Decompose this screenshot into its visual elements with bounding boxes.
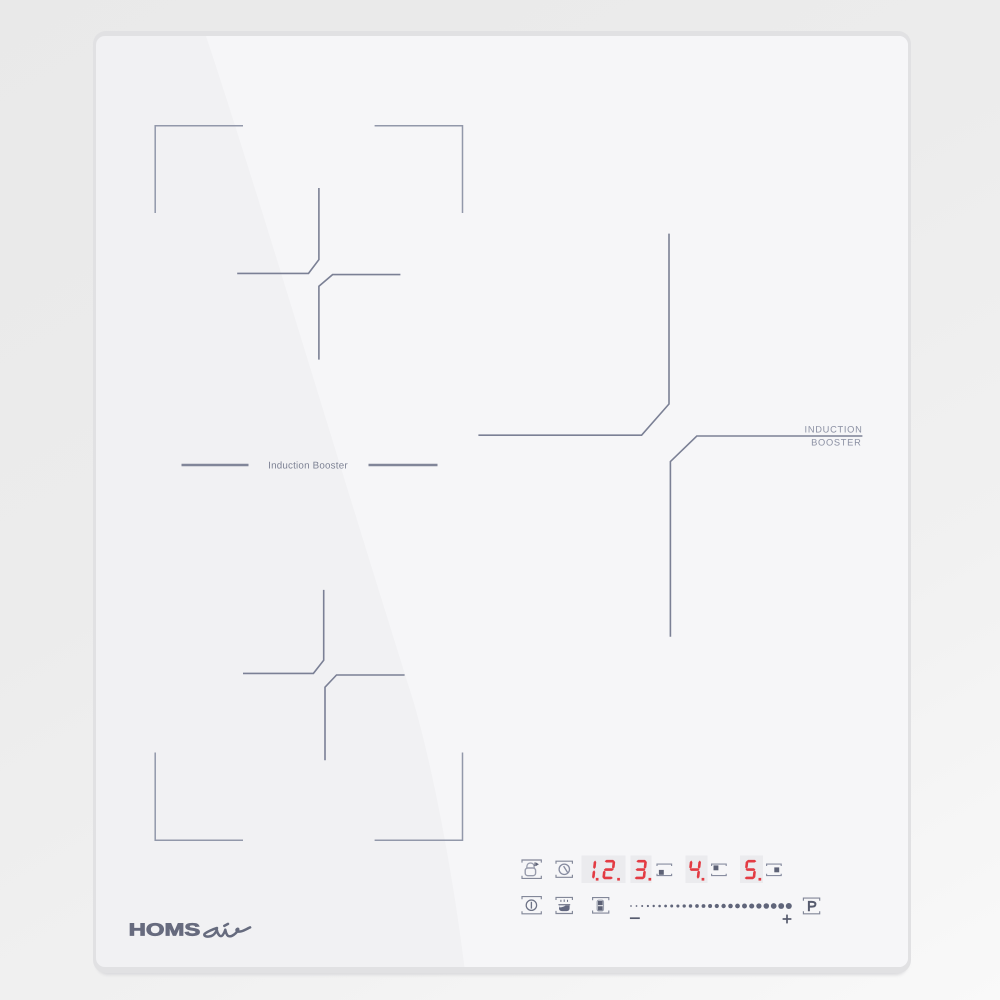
- svg-text:HOMS: HOMS: [129, 920, 201, 940]
- svg-text:BOOSTER: BOOSTER: [811, 437, 861, 447]
- svg-text:Induction Booster: Induction Booster: [268, 460, 348, 471]
- svg-text:INDUCTION: INDUCTION: [805, 425, 863, 435]
